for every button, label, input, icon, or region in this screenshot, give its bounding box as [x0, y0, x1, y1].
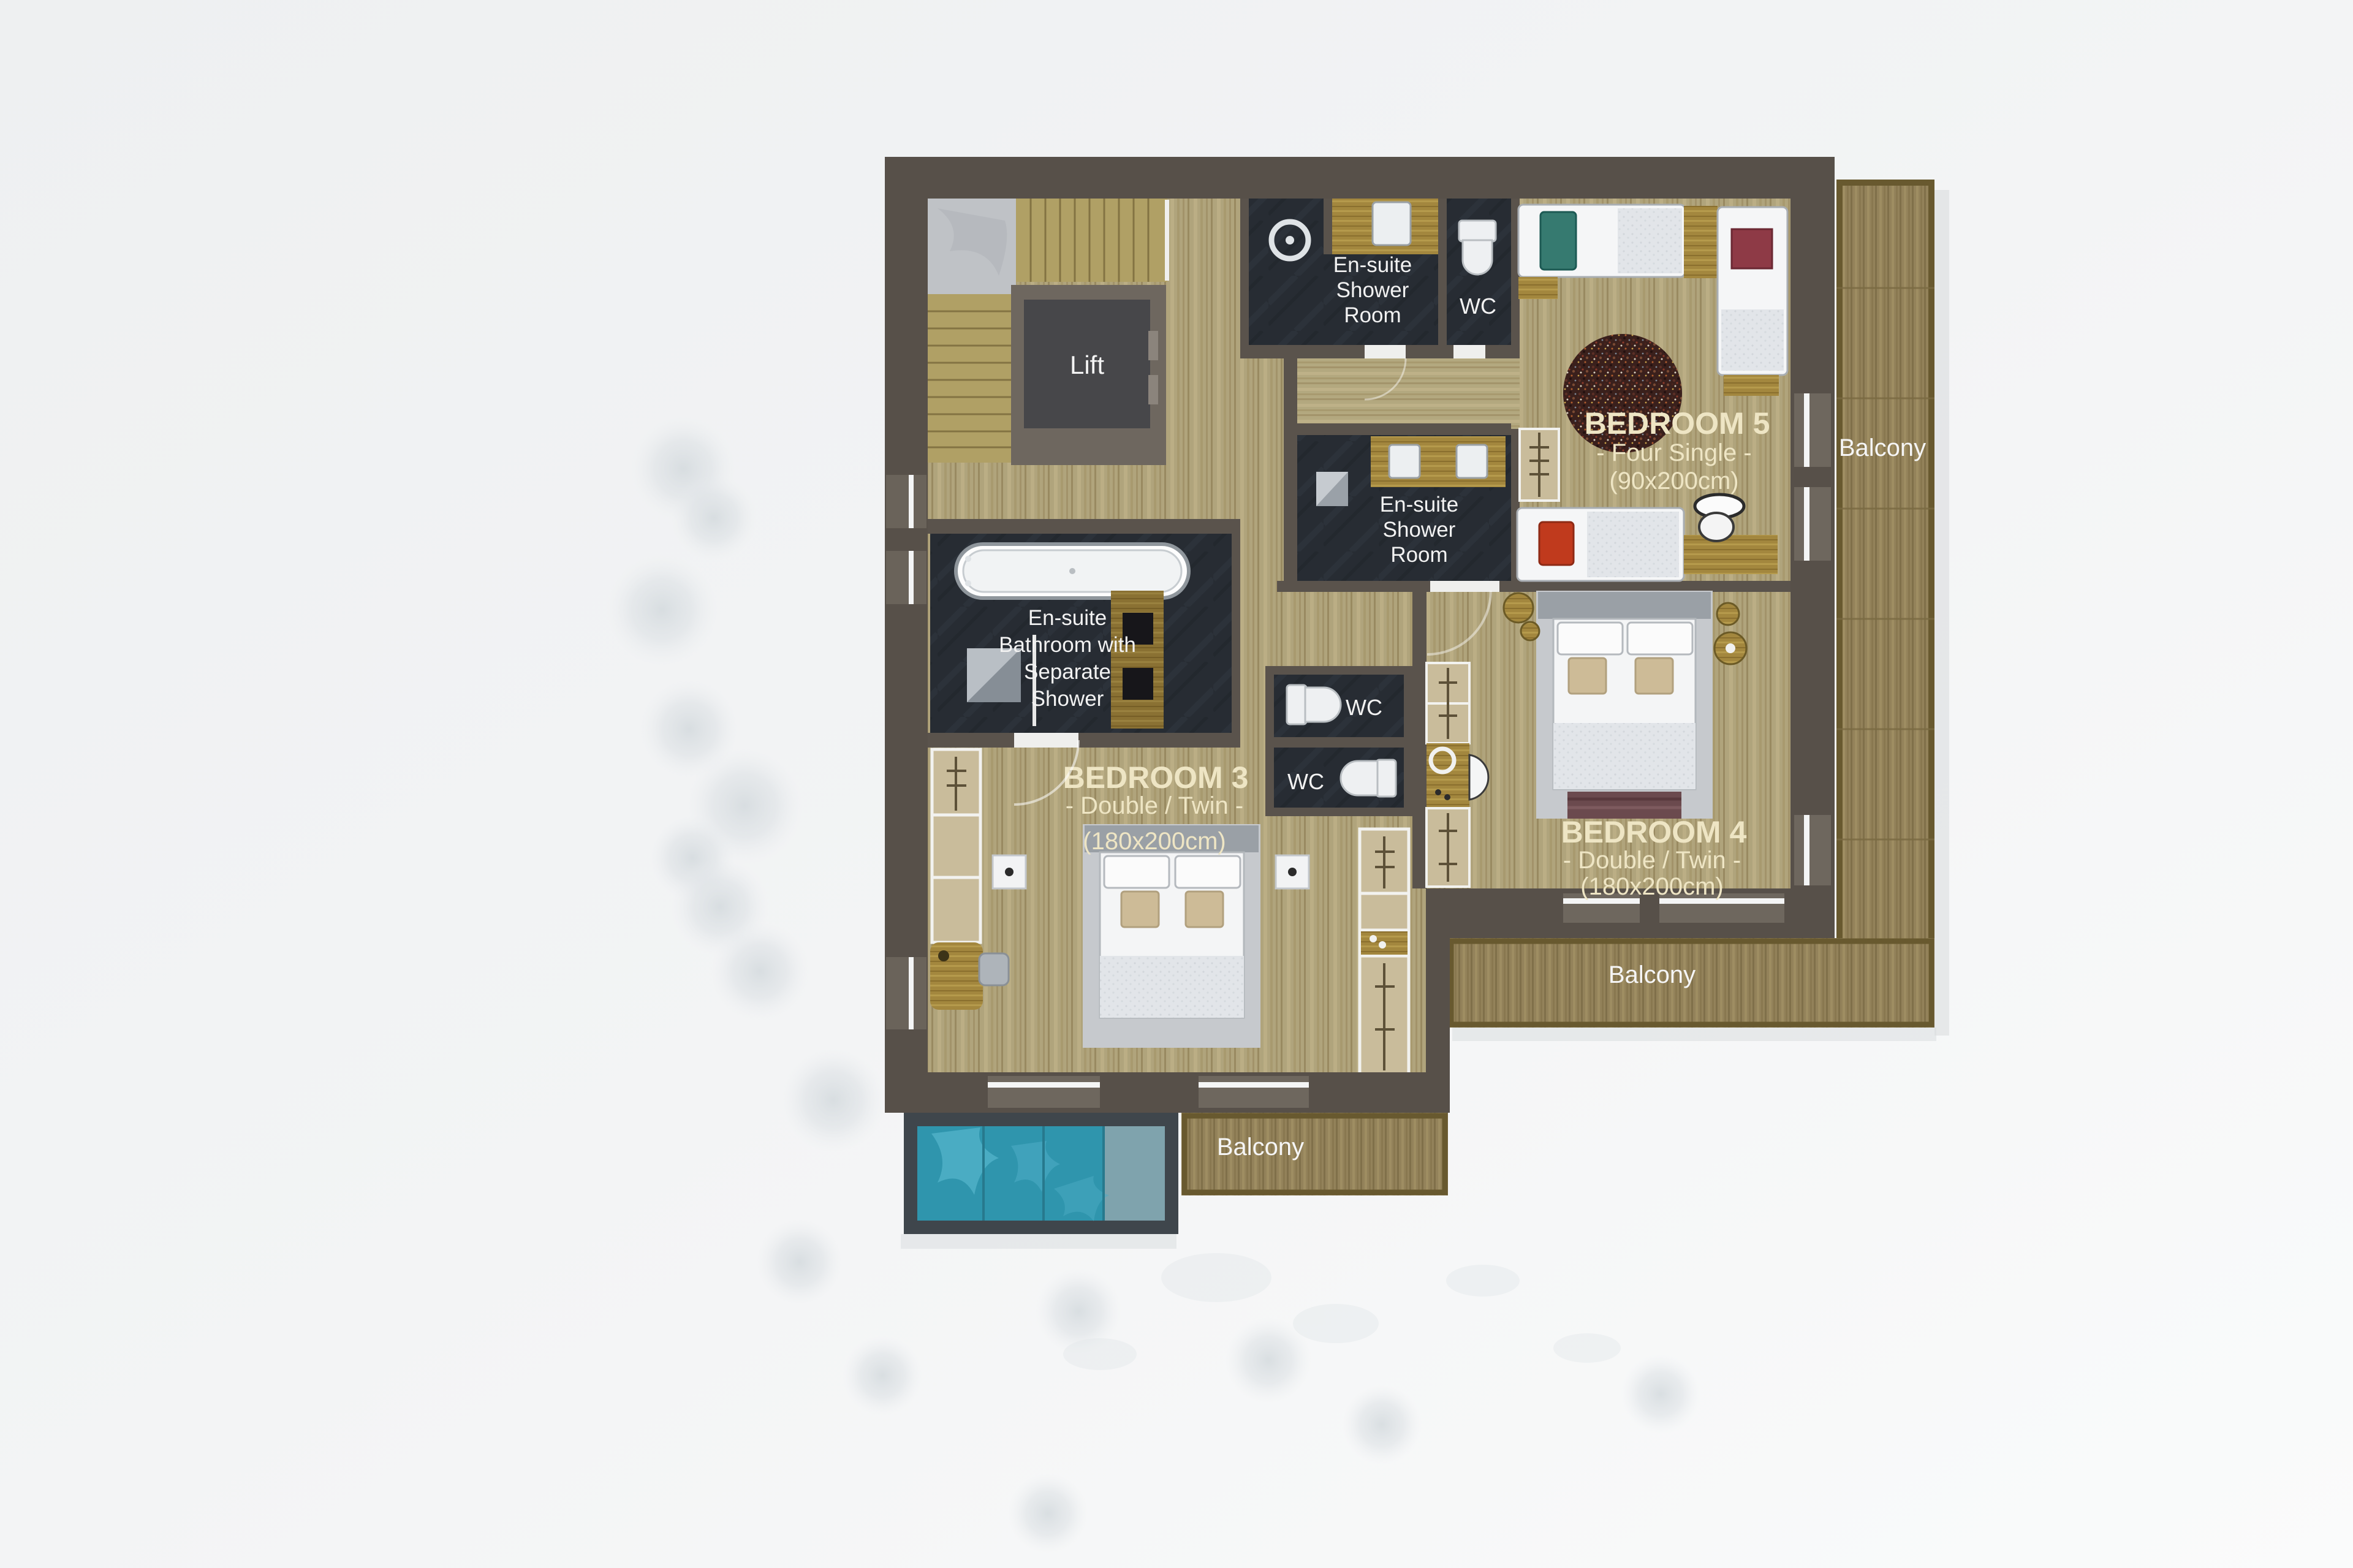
svg-text:- Four Single -: - Four Single -	[1596, 439, 1751, 466]
svg-text:En-suite: En-suite	[1028, 606, 1107, 630]
svg-text:(180x200cm): (180x200cm)	[1580, 873, 1723, 900]
svg-text:(180x200cm): (180x200cm)	[1083, 828, 1226, 855]
svg-text:BEDROOM 5: BEDROOM 5	[1585, 406, 1770, 441]
svg-text:WC: WC	[1287, 769, 1324, 794]
svg-text:Balcony: Balcony	[1839, 434, 1926, 461]
svg-text:- Double / Twin -: - Double / Twin -	[1066, 792, 1244, 819]
svg-text:Shower: Shower	[1031, 687, 1104, 711]
svg-text:BEDROOM 4: BEDROOM 4	[1561, 815, 1747, 849]
svg-text:Room: Room	[1344, 303, 1401, 327]
svg-text:- Double / Twin -: - Double / Twin -	[1563, 847, 1741, 874]
svg-text:En-suite: En-suite	[1333, 253, 1412, 277]
svg-text:(90x200cm): (90x200cm)	[1609, 468, 1738, 494]
svg-text:Shower: Shower	[1383, 518, 1456, 542]
svg-text:WC: WC	[1346, 695, 1382, 720]
svg-text:Balcony: Balcony	[1217, 1134, 1304, 1161]
svg-text:Separate: Separate	[1024, 660, 1111, 684]
svg-text:En-suite: En-suite	[1380, 493, 1458, 517]
svg-text:Bathroom with: Bathroom with	[999, 633, 1136, 657]
svg-text:WC: WC	[1460, 294, 1496, 319]
svg-text:Lift: Lift	[1070, 350, 1104, 379]
svg-text:Shower: Shower	[1336, 278, 1409, 302]
svg-text:Balcony: Balcony	[1608, 961, 1696, 988]
svg-text:Room: Room	[1390, 543, 1447, 567]
svg-text:BEDROOM 3: BEDROOM 3	[1063, 760, 1249, 795]
